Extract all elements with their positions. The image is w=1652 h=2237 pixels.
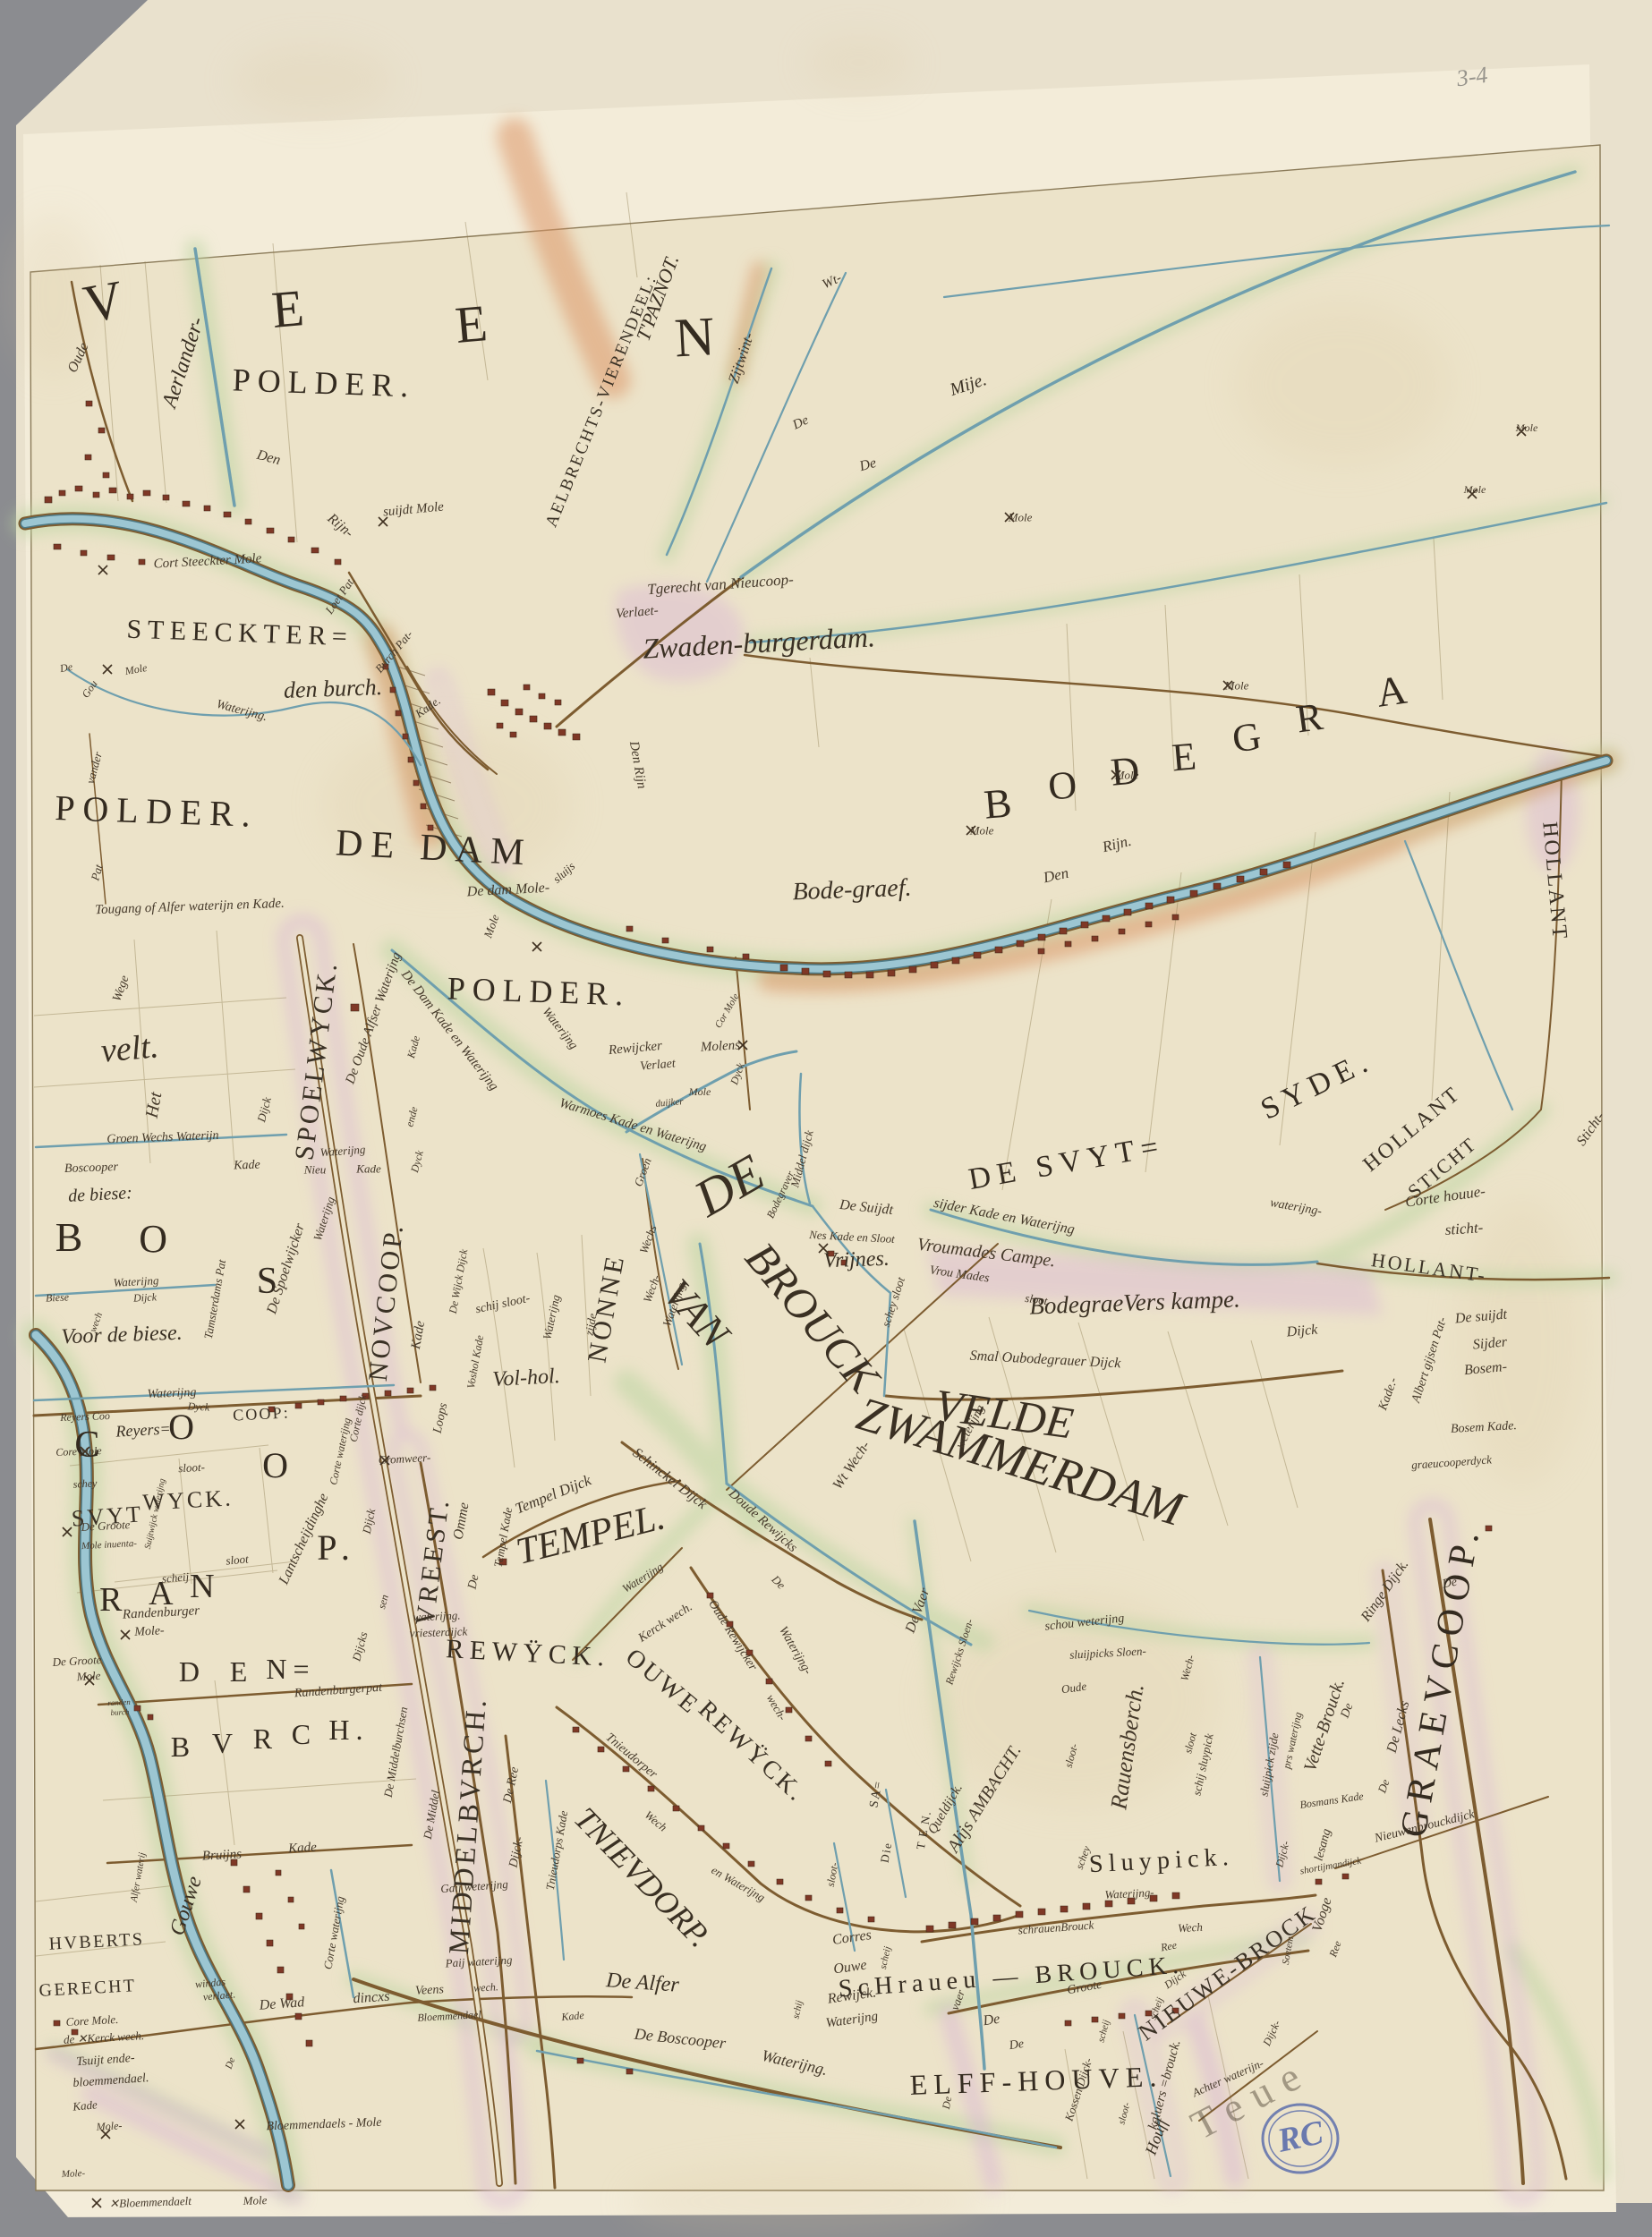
map-scan: VEENPOLDER.OudeAerlander-AELBRECHTS-VIER… — [0, 0, 1652, 2237]
map-artwork — [0, 0, 1652, 2237]
